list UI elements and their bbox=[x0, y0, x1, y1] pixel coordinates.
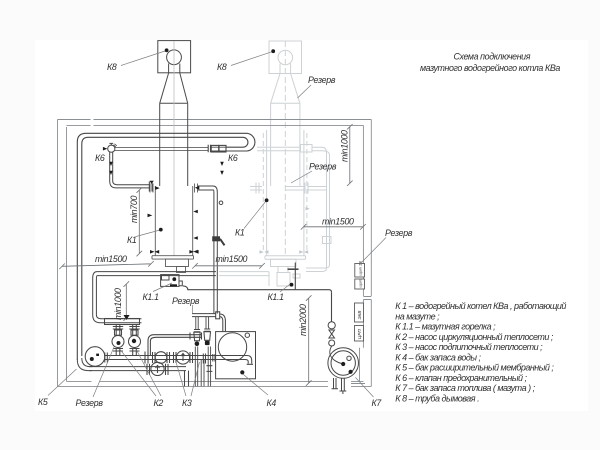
svg-text:Резерв: Резерв bbox=[385, 228, 413, 238]
svg-text:щит: щит bbox=[359, 279, 363, 288]
svg-text:min1500: min1500 bbox=[216, 254, 248, 264]
svg-text:min1500: min1500 bbox=[322, 217, 354, 227]
svg-text:К8: К8 bbox=[107, 62, 117, 72]
svg-text:Резерв: Резерв bbox=[308, 75, 336, 85]
svg-text:Резерв: Резерв bbox=[76, 398, 104, 408]
svg-text:К6: К6 bbox=[228, 153, 238, 163]
svg-text:К4: К4 bbox=[267, 398, 277, 408]
svg-text:К2: К2 bbox=[154, 398, 164, 408]
svg-text:на мазуте ;: на мазуте ; bbox=[395, 311, 440, 321]
svg-text:Резерв: Резерв bbox=[172, 296, 200, 306]
svg-text:К1: К1 bbox=[127, 235, 137, 245]
svg-text:К1.1: К1.1 bbox=[268, 292, 285, 302]
svg-text:К 6 – клапан предохранительны: К 6 – клапан предохранительный ; bbox=[395, 373, 527, 383]
svg-text:мазутного водогрейного котла К: мазутного водогрейного котла КВа bbox=[420, 63, 560, 73]
svg-text:К 4 – бак запаса воды ;: К 4 – бак запаса воды ; bbox=[395, 352, 481, 362]
svg-text:К 2 – насос циркуляционный те: К 2 – насос циркуляционный теплосети ; bbox=[395, 332, 554, 342]
svg-text:К1: К1 bbox=[235, 228, 245, 238]
svg-text:min1000: min1000 bbox=[113, 288, 123, 320]
svg-text:Схема подключения: Схема подключения bbox=[454, 52, 531, 62]
svg-text:min1000: min1000 bbox=[340, 130, 350, 162]
svg-text:min1500: min1500 bbox=[95, 254, 127, 264]
svg-text:К 1 – водогрейный котел КВа ,: К 1 – водогрейный котел КВа , работающий bbox=[395, 301, 566, 311]
svg-text:Резерв: Резерв bbox=[309, 162, 337, 172]
svg-text:щит ЭК: щит ЭК bbox=[359, 260, 363, 275]
svg-text:К 5 – бак расширительный мемб: К 5 – бак расширительный мембранный ; bbox=[395, 363, 554, 373]
svg-text:min2000: min2000 bbox=[298, 304, 308, 336]
svg-text:К 7 – бак запаса топлива ( м: К 7 – бак запаса топлива ( мазута ) ; bbox=[395, 383, 535, 393]
svg-text:К 8 – труба дымовая .: К 8 – труба дымовая . bbox=[395, 394, 479, 404]
svg-text:К7: К7 bbox=[372, 398, 383, 408]
svg-text:К 3 – насос подпиточный тепло: К 3 – насос подпиточный теплосети ; bbox=[395, 342, 543, 352]
svg-text:К6: К6 bbox=[95, 153, 105, 163]
svg-text:К 1.1 – мазутная горелка ;: К 1.1 – мазутная горелка ; bbox=[395, 322, 496, 332]
svg-text:ЭКВ: ЭКВ bbox=[357, 311, 362, 320]
svg-text:К8: К8 bbox=[217, 62, 227, 72]
svg-text:К5: К5 bbox=[38, 397, 48, 407]
svg-text:ЦРП: ЦРП bbox=[357, 329, 362, 339]
svg-text:min700: min700 bbox=[129, 196, 139, 223]
svg-text:К3: К3 bbox=[182, 398, 192, 408]
svg-text:К1.1: К1.1 bbox=[143, 292, 160, 302]
